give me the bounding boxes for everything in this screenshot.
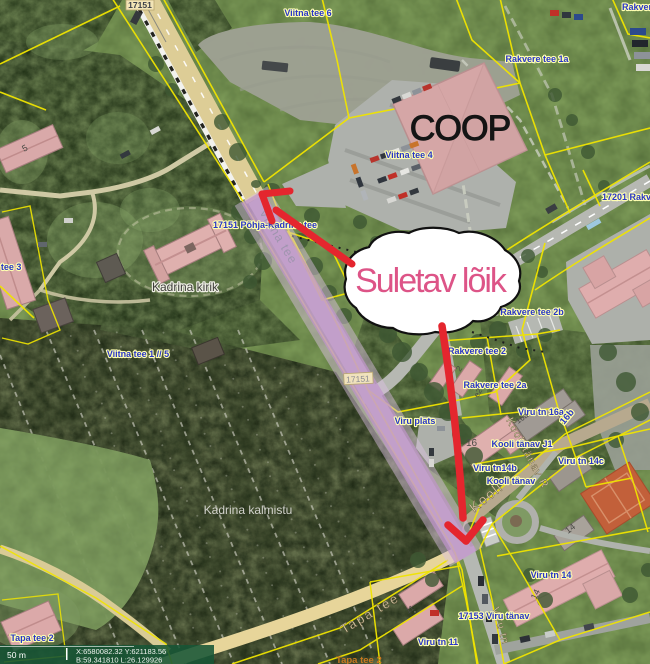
- svg-text:Rakvere tee 2: Rakvere tee 2: [448, 346, 506, 356]
- svg-text:Rakvere tee 2a: Rakvere tee 2a: [463, 380, 527, 390]
- svg-text:Kooli tänav: Kooli tänav: [487, 476, 536, 486]
- svg-text:Viru tn 14c: Viru tn 14c: [558, 456, 604, 466]
- svg-text:Suletav lõik: Suletav lõik: [355, 262, 508, 300]
- svg-text:Viitna tee 4: Viitna tee 4: [385, 150, 432, 160]
- svg-text:Viitna tee 3: Viitna tee 3: [0, 262, 21, 272]
- svg-text:Rakvere tee 1a: Rakvere tee 1a: [505, 54, 569, 64]
- svg-text:Viru tn 11: Viru tn 11: [418, 637, 458, 647]
- svg-text:17153 Viru tänav: 17153 Viru tänav: [459, 611, 530, 621]
- svg-text:Rakvere tee: Rakvere tee: [622, 2, 650, 12]
- svg-text:Tapa tee 2: Tapa tee 2: [336, 655, 382, 664]
- svg-text:Kooli tänav J1: Kooli tänav J1: [491, 439, 552, 449]
- svg-text:Viitna tee 1 // 5: Viitna tee 1 // 5: [107, 349, 169, 359]
- svg-text:Viru plats: Viru plats: [395, 416, 436, 426]
- svg-text:Kadrina kirik: Kadrina kirik: [152, 280, 219, 294]
- svg-text:16: 16: [466, 438, 478, 449]
- svg-text:50 m: 50 m: [7, 650, 26, 660]
- svg-text:Viitna tee 6: Viitna tee 6: [284, 8, 331, 18]
- svg-text:B:59.341810 L:26.129926: B:59.341810 L:26.129926: [76, 656, 162, 664]
- svg-text:Rakvere tee 2b: Rakvere tee 2b: [500, 307, 564, 317]
- svg-text:17151: 17151: [128, 0, 152, 10]
- svg-text:COOP: COOP: [410, 108, 511, 148]
- svg-text:Viru tn 14: Viru tn 14: [531, 570, 572, 580]
- svg-text:17151: 17151: [346, 373, 370, 384]
- svg-text:17201 Rakvere: 17201 Rakvere: [602, 192, 650, 202]
- svg-text:Kadrina kalmistu: Kadrina kalmistu: [204, 503, 293, 517]
- svg-text:Viru tn14b: Viru tn14b: [473, 463, 517, 473]
- svg-text:Tapa tee 2: Tapa tee 2: [10, 633, 53, 643]
